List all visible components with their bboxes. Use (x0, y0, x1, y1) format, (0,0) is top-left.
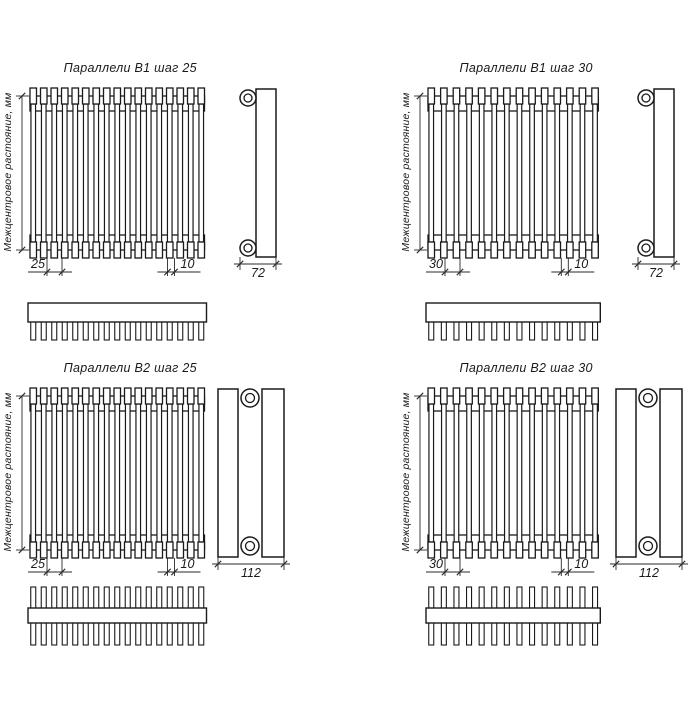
center-distance-dimension: Межцентровое растояние, мм (400, 392, 427, 553)
tube-top-cap (491, 388, 498, 404)
center-distance-dimension: Межцентровое растояние, мм (2, 392, 29, 553)
center-distance-dimension: Межцентровое растояние, мм (2, 92, 29, 253)
side-column (262, 389, 284, 557)
radiator-tube (178, 104, 183, 242)
radiator-tube (199, 104, 204, 242)
comb-tooth (429, 320, 434, 340)
radiator-tube (94, 404, 99, 542)
radiator-tube (146, 104, 151, 242)
drawing-B2-step30: Параллели В2 шаг 30Межцентровое растояни… (400, 361, 688, 645)
tube-top-cap (466, 88, 473, 104)
front-view (428, 388, 598, 558)
comb-tooth (94, 320, 99, 340)
tube-top-cap (504, 88, 511, 104)
radiator-tube (505, 104, 510, 242)
comb-tooth (517, 320, 522, 340)
radiator-tube (136, 404, 141, 542)
tube-top-cap (579, 88, 586, 104)
radiator-tube (188, 404, 193, 542)
tube-bottom-cap (453, 542, 460, 558)
radiator-tube (62, 404, 67, 542)
tube-bottom-cap (478, 542, 485, 558)
tube-top-cap (135, 88, 142, 104)
comb-bar (426, 303, 600, 322)
radiator-tube (52, 104, 57, 242)
dimension-step-label: 30 (429, 557, 443, 571)
side-view (240, 89, 276, 257)
top-view-comb (28, 303, 207, 340)
tube-top-cap (554, 388, 561, 404)
tube-bottom-cap (198, 242, 205, 258)
comb-tooth (125, 320, 130, 340)
dimension-tube-label: 10 (181, 557, 195, 571)
tube-top-cap (529, 88, 536, 104)
tube-top-cap (135, 388, 142, 404)
tube-top-cap (167, 388, 174, 404)
radiator-tube (530, 404, 535, 542)
radiator-tube (429, 404, 434, 542)
tube-top-cap (114, 88, 121, 104)
tube-top-cap (114, 388, 121, 404)
tube-top-cap (453, 88, 460, 104)
comb-tooth (542, 587, 547, 610)
drawing-B2-step25: Параллели В2 шаг 25Межцентровое растояни… (2, 361, 290, 645)
comb-tooth (441, 587, 446, 610)
tube-top-cap (156, 388, 163, 404)
comb-tooth (146, 320, 151, 340)
tube-top-cap (567, 88, 574, 104)
tube-top-cap (567, 388, 574, 404)
comb-tooth (429, 587, 434, 610)
comb-tooth (504, 587, 509, 610)
radiator-tube (542, 404, 547, 542)
tube-top-cap (41, 388, 48, 404)
radiator-tube (199, 404, 204, 542)
radiator-tube (467, 104, 472, 242)
comb-bar (28, 608, 207, 623)
radiator-tube (492, 404, 497, 542)
dimension-step-label: 30 (429, 257, 443, 271)
comb-tooth (73, 621, 78, 645)
tube-bottom-cap (156, 542, 163, 558)
radiator-tube (62, 104, 67, 242)
center-distance-dimension: Межцентровое растояние, мм (400, 92, 427, 253)
tube-top-cap (167, 88, 174, 104)
tube-top-cap (104, 388, 111, 404)
tube-top-cap (177, 388, 184, 404)
comb-tooth (555, 320, 560, 340)
comb-tooth (530, 320, 535, 340)
connection-port-inner-icon (642, 244, 650, 252)
tube-top-cap (198, 388, 205, 404)
comb-tooth (178, 587, 183, 610)
tube-bottom-cap (554, 542, 561, 558)
connection-port-inner-icon (246, 542, 255, 551)
connection-port-inner-icon (642, 94, 650, 102)
side-column (256, 89, 276, 257)
radiator-tube (442, 104, 447, 242)
dimension-depth-label: 112 (241, 566, 261, 580)
comb-tooth (454, 320, 459, 340)
radiator-tube (125, 104, 130, 242)
tube-bottom-cap (198, 542, 205, 558)
drawing-title: Параллели В2 шаг 30 (460, 361, 593, 375)
comb-tooth (593, 621, 598, 645)
radiator-tube (517, 104, 522, 242)
comb-tooth (73, 587, 78, 610)
comb-tooth (567, 587, 572, 610)
radiator-tube (593, 104, 598, 242)
tube-top-cap (428, 388, 435, 404)
comb-tooth (479, 621, 484, 645)
comb-tooth (136, 320, 141, 340)
connection-port-inner-icon (644, 394, 653, 403)
dimension-depth-label: 72 (251, 266, 265, 280)
comb-tooth (542, 621, 547, 645)
tube-bottom-cap (491, 242, 498, 258)
comb-tooth (94, 621, 99, 645)
comb-tooth (62, 587, 67, 610)
side-column (654, 89, 674, 257)
radiator-tube (517, 404, 522, 542)
radiator-tube (94, 104, 99, 242)
radiator-tube (136, 104, 141, 242)
tube-bottom-cap (592, 542, 599, 558)
tube-bottom-cap (30, 242, 37, 258)
comb-tooth (580, 621, 585, 645)
radiator-tube (188, 104, 193, 242)
radiator-tube (178, 404, 183, 542)
tube-bottom-cap (135, 542, 142, 558)
connection-port-inner-icon (244, 94, 252, 102)
tube-bottom-cap (504, 242, 511, 258)
tube-top-cap (592, 388, 599, 404)
comb-tooth (157, 587, 162, 610)
comb-tooth (467, 587, 472, 610)
tube-bottom-cap (177, 242, 184, 258)
tube-top-cap (72, 388, 79, 404)
comb-tooth (94, 587, 99, 610)
radiator-tube (31, 104, 36, 242)
tube-top-cap (504, 388, 511, 404)
comb-tooth (580, 587, 585, 610)
tube-top-cap (146, 88, 153, 104)
tube-bottom-cap (466, 542, 473, 558)
tube-top-cap (478, 388, 485, 404)
axis-distance-label: Межцентровое растояние, мм (2, 92, 14, 251)
tube-width-dimension: 10 (158, 257, 201, 276)
radiator-tube (530, 104, 535, 242)
dimension-step-label: 25 (30, 257, 45, 271)
dimension-tube-label: 10 (574, 257, 588, 271)
side-view (218, 389, 284, 557)
radiator-tube (104, 104, 109, 242)
comb-tooth (146, 621, 151, 645)
tube-top-cap (441, 388, 448, 404)
side-column (660, 389, 682, 557)
tube-top-cap (516, 388, 523, 404)
tube-bottom-cap (478, 242, 485, 258)
radiator-tube (454, 404, 459, 542)
tube-top-cap (93, 88, 100, 104)
tube-bottom-cap (72, 242, 79, 258)
tube-top-cap (478, 88, 485, 104)
radiator-tube (73, 104, 78, 242)
comb-tooth (167, 621, 172, 645)
tube-bottom-cap (146, 242, 153, 258)
tube-bottom-cap (135, 242, 142, 258)
radiator-tube (125, 404, 130, 542)
top-view-comb (426, 587, 600, 645)
tube-bottom-cap (491, 542, 498, 558)
radiator-tube (555, 404, 560, 542)
tube-top-cap (51, 388, 58, 404)
depth-dimension: 112 (212, 557, 290, 580)
axis-distance-label: Межцентровое растояние, мм (2, 392, 14, 551)
technical-drawing-sheet: Параллели В1 шаг 25Межцентровое растояни… (0, 0, 700, 700)
comb-tooth (467, 621, 472, 645)
tube-bottom-cap (592, 242, 599, 258)
tube-bottom-cap (156, 242, 163, 258)
side-view (616, 389, 682, 557)
drawing-B1-step25: Параллели В1 шаг 25Межцентровое растояни… (2, 61, 282, 340)
tube-bottom-cap (516, 542, 523, 558)
comb-tooth (517, 587, 522, 610)
comb-tooth (479, 587, 484, 610)
tube-bottom-cap (30, 542, 37, 558)
comb-tooth (441, 320, 446, 340)
tube-top-cap (30, 388, 37, 404)
tube-top-cap (188, 388, 195, 404)
comb-tooth (178, 621, 183, 645)
tube-bottom-cap (62, 242, 69, 258)
tube-bottom-cap (567, 242, 574, 258)
radiator-tube (167, 404, 172, 542)
tube-bottom-cap (114, 242, 121, 258)
top-view-comb (28, 587, 207, 645)
tube-bottom-cap (466, 242, 473, 258)
radiator-tube (115, 104, 120, 242)
step-dimension: 25 (28, 257, 72, 276)
tube-bottom-cap (93, 242, 100, 258)
front-view (428, 88, 598, 258)
tube-bottom-cap (41, 542, 48, 558)
tube-bottom-cap (62, 542, 69, 558)
radiator-tube (492, 104, 497, 242)
tube-bottom-cap (83, 242, 90, 258)
comb-tooth (136, 587, 141, 610)
tube-bottom-cap (554, 242, 561, 258)
radiator-tube (41, 104, 46, 242)
depth-dimension: 72 (234, 257, 282, 280)
comb-tooth (479, 320, 484, 340)
comb-tooth (62, 621, 67, 645)
tube-top-cap (104, 88, 111, 104)
tube-bottom-cap (72, 542, 79, 558)
tube-bottom-cap (529, 242, 536, 258)
radiator-tube (568, 104, 573, 242)
comb-tooth (188, 587, 193, 610)
drawing-title: Параллели В1 шаг 25 (64, 61, 197, 75)
comb-tooth (157, 621, 162, 645)
radiator-tube (580, 404, 585, 542)
dimension-tube-label: 10 (574, 557, 588, 571)
top-view-comb (426, 303, 600, 340)
radiator-tube (505, 404, 510, 542)
tube-bottom-cap (441, 542, 448, 558)
radiator-tube (568, 404, 573, 542)
tube-top-cap (428, 88, 435, 104)
front-view (30, 388, 205, 558)
axis-distance-label: Межцентровое растояние, мм (400, 392, 412, 551)
dimension-tube-label: 10 (181, 257, 195, 271)
radiator-tube (580, 104, 585, 242)
tube-bottom-cap (104, 242, 111, 258)
tube-bottom-cap (567, 542, 574, 558)
tube-top-cap (554, 88, 561, 104)
front-view (30, 88, 205, 258)
tube-bottom-cap (428, 542, 435, 558)
drawing-title: Параллели В1 шаг 30 (460, 61, 593, 75)
comb-tooth (115, 621, 120, 645)
radiator-tube (146, 404, 151, 542)
radiator-tube (83, 104, 88, 242)
comb-tooth (555, 621, 560, 645)
comb-tooth (52, 320, 57, 340)
comb-tooth (83, 320, 88, 340)
drawing-B1-step30: Параллели В1 шаг 30Межцентровое растояни… (400, 61, 680, 340)
comb-tooth (115, 587, 120, 610)
radiator-tube (542, 104, 547, 242)
tube-bottom-cap (167, 542, 174, 558)
comb-tooth (52, 587, 57, 610)
tube-bottom-cap (83, 542, 90, 558)
tube-bottom-cap (541, 242, 548, 258)
comb-tooth (504, 621, 509, 645)
comb-bar (426, 608, 600, 623)
comb-tooth (31, 587, 36, 610)
comb-tooth (199, 621, 204, 645)
tube-bottom-cap (51, 242, 58, 258)
tube-top-cap (146, 388, 153, 404)
tube-top-cap (188, 88, 195, 104)
tube-top-cap (62, 388, 69, 404)
step-dimension: 30 (426, 557, 470, 576)
tube-top-cap (83, 388, 90, 404)
tube-bottom-cap (188, 542, 195, 558)
radiator-tube (593, 404, 598, 542)
radiator-tube (467, 404, 472, 542)
tube-top-cap (72, 88, 79, 104)
comb-tooth (429, 621, 434, 645)
comb-tooth (146, 587, 151, 610)
comb-tooth (73, 320, 78, 340)
tube-bottom-cap (579, 242, 586, 258)
tube-top-cap (441, 88, 448, 104)
comb-tooth (125, 621, 130, 645)
tube-top-cap (516, 88, 523, 104)
comb-tooth (83, 621, 88, 645)
side-column (218, 389, 238, 557)
tube-bottom-cap (125, 242, 132, 258)
tube-bottom-cap (104, 542, 111, 558)
comb-tooth (454, 587, 459, 610)
tube-top-cap (592, 88, 599, 104)
radiator-tube (479, 404, 484, 542)
tube-top-cap (541, 88, 548, 104)
tube-bottom-cap (441, 242, 448, 258)
comb-tooth (593, 587, 598, 610)
comb-tooth (167, 320, 172, 340)
dimension-depth-label: 112 (639, 566, 659, 580)
tube-bottom-cap (177, 542, 184, 558)
tube-top-cap (198, 88, 205, 104)
radiator-tube (442, 404, 447, 542)
radiator-drawing-canvas: Параллели В1 шаг 25Межцентровое растояни… (0, 0, 700, 700)
comb-bar (28, 303, 207, 322)
tube-top-cap (177, 88, 184, 104)
radiator-tube (104, 404, 109, 542)
step-dimension: 30 (426, 257, 470, 276)
comb-tooth (125, 587, 130, 610)
comb-tooth (199, 320, 204, 340)
tube-bottom-cap (51, 542, 58, 558)
radiator-tube (167, 104, 172, 242)
axis-distance-label: Межцентровое растояние, мм (400, 92, 412, 251)
comb-tooth (492, 587, 497, 610)
tube-bottom-cap (125, 542, 132, 558)
comb-tooth (593, 320, 598, 340)
radiator-tube (83, 404, 88, 542)
comb-tooth (178, 320, 183, 340)
comb-tooth (62, 320, 67, 340)
tube-width-dimension: 10 (551, 557, 594, 576)
dimension-step-label: 25 (30, 557, 45, 571)
connection-port-inner-icon (246, 394, 255, 403)
comb-tooth (31, 621, 36, 645)
tube-top-cap (30, 88, 37, 104)
tube-top-cap (125, 388, 132, 404)
comb-tooth (136, 621, 141, 645)
tube-bottom-cap (453, 242, 460, 258)
tube-width-dimension: 10 (158, 557, 201, 576)
comb-tooth (542, 320, 547, 340)
tube-bottom-cap (529, 542, 536, 558)
comb-tooth (555, 587, 560, 610)
comb-tooth (530, 587, 535, 610)
comb-tooth (492, 320, 497, 340)
tube-top-cap (41, 88, 48, 104)
radiator-tube (479, 104, 484, 242)
tube-top-cap (156, 88, 163, 104)
comb-tooth (41, 621, 46, 645)
comb-tooth (441, 621, 446, 645)
side-view (638, 89, 674, 257)
comb-tooth (104, 587, 109, 610)
comb-tooth (83, 587, 88, 610)
radiator-tube (52, 404, 57, 542)
tube-width-dimension: 10 (551, 257, 594, 276)
tube-bottom-cap (188, 242, 195, 258)
tube-top-cap (125, 88, 132, 104)
tube-bottom-cap (93, 542, 100, 558)
tube-top-cap (83, 88, 90, 104)
comb-tooth (567, 320, 572, 340)
comb-tooth (41, 320, 46, 340)
tube-bottom-cap (167, 242, 174, 258)
comb-tooth (115, 320, 120, 340)
depth-dimension: 72 (632, 257, 680, 280)
